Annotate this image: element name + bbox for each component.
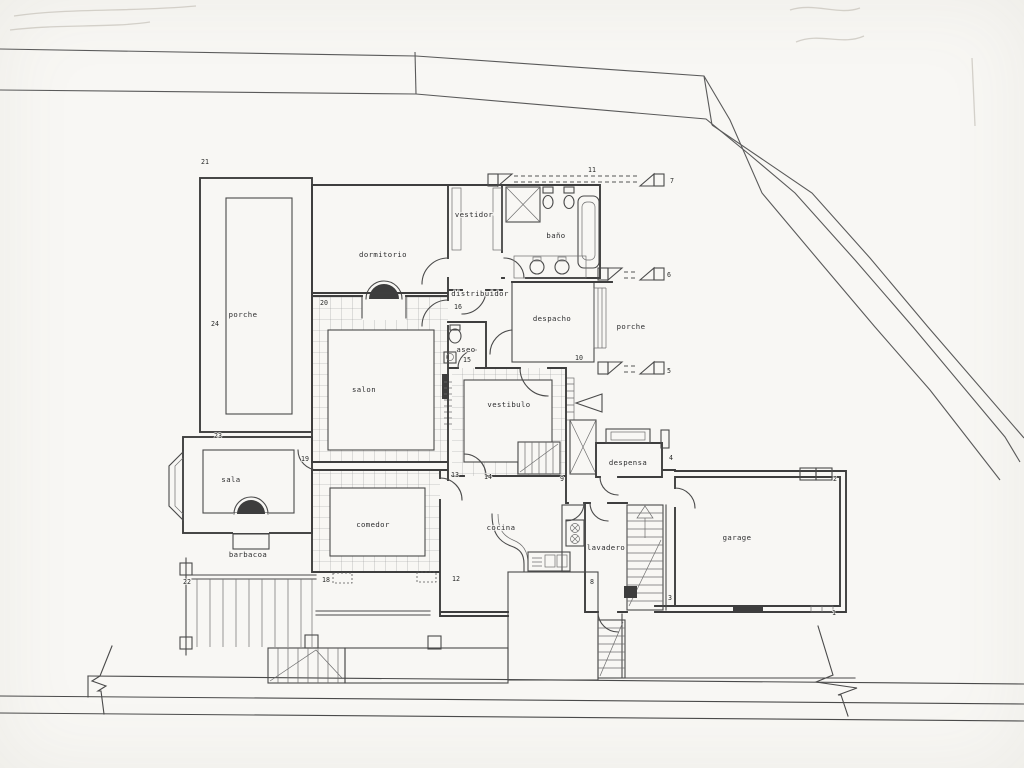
label-bano: baño: [546, 231, 565, 240]
road-lines: [0, 614, 1024, 721]
marker-3: 3: [668, 594, 672, 602]
label-despensa: despensa: [609, 458, 647, 467]
label-aseo: aseo: [456, 345, 475, 354]
marker-1: 1: [832, 609, 836, 617]
marker-15: 15: [463, 356, 471, 364]
shower: [506, 187, 540, 222]
exterior-stairs-right: [598, 620, 625, 678]
walkway-tiles: [345, 648, 508, 683]
marker-19: 19: [301, 455, 309, 463]
garage-door: [733, 607, 763, 611]
entry-window: [566, 378, 574, 420]
bathtub: [578, 196, 599, 268]
marker-20: 20: [320, 299, 328, 307]
marker-4: 4: [669, 454, 673, 462]
label-cocina: cocina: [487, 523, 516, 532]
scanned-floor-plan-page: vestidor baño dormitorio distribuidor de…: [0, 0, 1024, 768]
dotted-markers: [333, 572, 436, 583]
bidet: [564, 187, 574, 209]
label-dormitorio: dormitorio: [359, 250, 407, 259]
closet-shelves: [452, 188, 502, 250]
kitchen-fixtures: [492, 505, 585, 572]
label-despacho: despacho: [533, 314, 571, 323]
label-vestidor: vestidor: [455, 210, 494, 219]
label-sala: sala: [221, 475, 240, 484]
marker-18: 18: [322, 576, 330, 584]
marker-2: 2: [833, 475, 837, 483]
kitchen-sink-unit: [528, 552, 570, 571]
stair-void: [570, 420, 596, 474]
column-row-bottom: [598, 362, 664, 374]
label-porche-left: porche: [229, 310, 258, 319]
toilet: [543, 187, 553, 209]
label-barbacoa: barbacoa: [229, 550, 267, 559]
salon-block: [312, 281, 452, 462]
column-row-middle: [598, 268, 664, 280]
marker-5: 5: [667, 367, 671, 375]
label-garage: garage: [723, 533, 752, 542]
hob: [566, 520, 584, 546]
floor-plan-drawing: vestidor baño dormitorio distribuidor de…: [0, 0, 1024, 768]
label-comedor: comedor: [356, 520, 390, 529]
marker-24: 24: [211, 320, 219, 328]
marker-21: 21: [201, 158, 209, 166]
entry-arrow: [576, 394, 602, 412]
marker-8: 8: [590, 578, 594, 586]
break-symbol-left: [92, 646, 112, 714]
porch-columns: [488, 174, 664, 374]
marker-23: 23: [214, 432, 222, 440]
double-sink-vanity: [514, 256, 586, 278]
marker-10: 10: [575, 354, 583, 362]
sala-block: [169, 437, 318, 549]
marker-22: 22: [183, 578, 191, 586]
marker-12: 12: [452, 575, 460, 583]
marker-9: 9: [560, 475, 564, 483]
label-lavadero: lavadero: [587, 543, 625, 552]
marker-7: 7: [670, 177, 674, 185]
label-porche-right: porche: [617, 322, 646, 331]
marker-14: 14: [484, 473, 492, 481]
barbecue: [233, 534, 269, 549]
marker-16: 16: [454, 303, 462, 311]
vestibulo-stairs: [518, 442, 560, 474]
main-staircase: [624, 505, 666, 610]
paper-smudges: [10, 6, 975, 126]
vestibulo-block: [452, 368, 602, 476]
marker-11: 11: [588, 166, 596, 174]
bay-window: [169, 452, 183, 520]
marker-13: 13: [451, 471, 459, 479]
label-salon: salon: [352, 385, 376, 394]
porche-left-strip: [200, 178, 312, 432]
label-vestibulo: vestibulo: [487, 400, 530, 409]
salon-fireplace: [369, 284, 399, 299]
marker-6: 6: [667, 271, 671, 279]
label-distribuidor: distribuidor: [451, 289, 509, 298]
